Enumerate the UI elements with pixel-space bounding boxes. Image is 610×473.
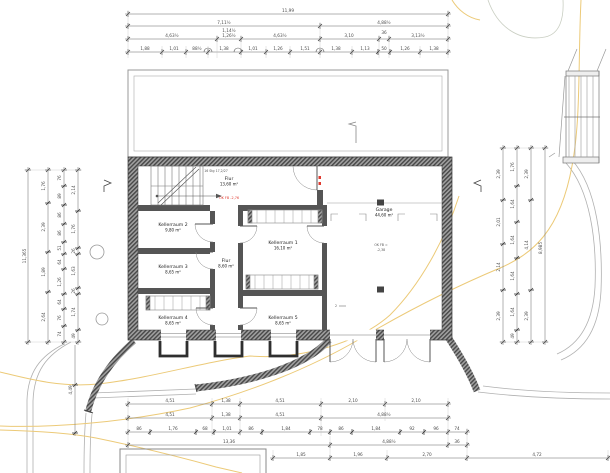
dimension-label: 36: [454, 439, 460, 444]
dimension-label: 1,89: [41, 267, 46, 277]
dimension-label: 4,51: [275, 412, 285, 417]
dimension-label: 1,63: [71, 266, 76, 276]
dimension-label: 4,88½: [377, 20, 390, 25]
dimension-label: 1,38: [221, 412, 231, 417]
stair-bottom-bar: [563, 157, 599, 163]
window-gap: [161, 330, 186, 341]
dimension-label: 3,13½: [411, 33, 424, 38]
light-well: [160, 341, 187, 356]
drain-marker-icon: [349, 122, 356, 143]
dimension-label: 74: [454, 426, 460, 431]
column: [377, 287, 384, 293]
level-annotation: OK FB -2,76: [219, 196, 239, 200]
dimension-label: 2,39: [41, 222, 46, 232]
dimension-label: 86: [57, 212, 62, 218]
dimension-label: 3,10: [344, 33, 354, 38]
dimension-label: 1,64: [510, 199, 515, 209]
dimension-label: 1,38: [429, 46, 439, 51]
dimension-label: 8,985: [538, 242, 543, 254]
dimension-label: 1,84: [281, 426, 291, 431]
terrain-squiggle-top: [488, 0, 563, 38]
dimension-label: 1,76: [168, 426, 178, 431]
dimension-label: 76: [57, 175, 62, 181]
dimension-label: 92: [409, 426, 415, 431]
dimension-label: 2,14: [496, 262, 501, 272]
road-curve-left-outer: [27, 344, 64, 473]
dimension-label: 2,64: [41, 312, 46, 322]
dimension-label: 1,26: [273, 46, 283, 51]
road-bottom: [93, 389, 196, 393]
dimension-label: 64: [57, 299, 62, 305]
dimension-label: 51: [57, 245, 62, 251]
dimension-label: 2,10: [348, 398, 358, 403]
terrain-contours: [0, 0, 581, 473]
dimension-label: 7,11½: [217, 20, 230, 25]
door-swing-arc: [196, 308, 213, 325]
dimension-label: 4,14: [524, 240, 529, 250]
stair-treads: [569, 76, 593, 157]
light-well: [270, 341, 297, 356]
dimension-label: 1,01: [169, 46, 179, 51]
road-right2: [483, 386, 610, 393]
stair-treads: [151, 166, 203, 205]
dimension-label: 4,49: [68, 385, 73, 395]
stair-top-bar: [566, 71, 599, 76]
dimension-label: 4,72: [532, 452, 542, 457]
road-curve-left-inner: [84, 413, 86, 473]
dimension-label: 4,63½: [165, 33, 178, 38]
floor-plan-page: 11,997,11½4,88½4,63½1,14½1,26½4,63½3,103…: [0, 0, 610, 473]
wall: [210, 325, 215, 330]
garage-door-arc: [353, 339, 376, 362]
road-bottom2: [93, 394, 196, 398]
shelf-endcap: [248, 210, 252, 223]
wall: [238, 243, 243, 308]
dimension-label: 36: [381, 30, 387, 35]
section-marker-2: 2: [335, 304, 337, 308]
dimension-label: 96: [433, 426, 439, 431]
dimension-label: 1,38: [219, 46, 229, 51]
door-swing-arc: [293, 166, 317, 190]
room-area: 8,65 m²: [165, 270, 181, 275]
dimension-label: 26: [71, 288, 76, 294]
door-swing-arc: [307, 226, 324, 243]
wall: [138, 205, 210, 211]
wall: [317, 190, 323, 205]
road-curve-left-outer2: [33, 342, 71, 473]
stair-edges: [564, 71, 600, 163]
retaining-wall-cap: [84, 384, 197, 413]
dimension-label: 1,64: [510, 307, 515, 317]
dimension-label: 1,26½: [222, 33, 235, 38]
dimension-chains: [25, 11, 610, 461]
door-swing-arc: [240, 226, 257, 243]
dimension-label: 26: [71, 248, 76, 254]
dimension-label: 49: [71, 333, 76, 339]
wall: [322, 243, 327, 330]
room-area: 16,10 m²: [274, 246, 293, 251]
dimension-label: 2,70: [422, 452, 432, 457]
shelf-endcap: [146, 296, 150, 310]
wall: [210, 211, 215, 224]
building: OK FB -2,76 2: [104, 157, 481, 362]
dimension-label: 2,10: [411, 398, 421, 403]
dimension-label: 88½: [192, 46, 201, 51]
dimension-label: 89: [57, 193, 62, 199]
red-annotations: OK FB -2,76: [219, 176, 321, 200]
dimension-label: 86: [136, 426, 142, 431]
dimension-label: 4,88½: [377, 412, 390, 417]
wall: [210, 242, 215, 252]
wall: [138, 248, 210, 254]
wall: [210, 269, 215, 308]
dimension-label: 1,01: [222, 426, 232, 431]
wall: [243, 290, 322, 296]
contour-line: [0, 430, 242, 473]
dimension-label: 13,36: [223, 439, 235, 444]
column: [377, 200, 384, 206]
dimension-label: 68: [202, 426, 208, 431]
garage-door-arc: [384, 339, 407, 362]
dimension-label: 4,51: [275, 398, 285, 403]
dimension-label: 2,39: [524, 311, 529, 321]
dimension-label: 2,01: [496, 217, 501, 227]
shelf-endcap: [246, 275, 250, 289]
garage-door-arc: [407, 339, 430, 362]
garage-door-leaf: [330, 339, 430, 362]
tree-symbol: [90, 245, 104, 259]
dimension-label: 74: [57, 331, 62, 337]
dimension-label: 1,26: [57, 277, 62, 287]
wall: [138, 288, 210, 294]
stair-slope-lines: [549, 49, 606, 157]
room-area: 13,60 m²: [220, 182, 239, 187]
door-swing-arc: [196, 252, 213, 269]
dimension-label: 49: [510, 333, 515, 339]
floor-plan-canvas: 11,997,11½4,88½4,63½1,14½1,26½4,63½3,103…: [0, 0, 610, 473]
dimension-label: 1,76: [41, 181, 46, 191]
dimension-label: 11,365: [22, 248, 27, 263]
contour-line: [452, 0, 480, 20]
dimension-label: 1,85: [296, 452, 306, 457]
forecourt-inner: [126, 455, 260, 473]
dimension-label: 1,84: [371, 426, 381, 431]
room-area: 44,60 m²: [375, 213, 394, 218]
window-gap: [271, 330, 296, 341]
dimension-label: 78: [317, 426, 323, 431]
dimension-label: 64: [57, 259, 62, 265]
retaining-wall-right: [448, 337, 477, 391]
door-tag: [319, 176, 322, 179]
dimension-label: 11,99: [282, 8, 294, 13]
dimension-label: 1,74: [71, 307, 76, 317]
section-marker-a-left: [104, 180, 111, 192]
wall: [322, 211, 327, 226]
dimension-label: 1,96: [353, 452, 363, 457]
exterior-stair: [549, 49, 606, 163]
door-swing-arc: [195, 224, 213, 242]
dimension-label: 2,14: [71, 185, 76, 195]
dimension-label: 2,39: [496, 311, 501, 321]
dimension-label: 1,88: [140, 46, 150, 51]
retaining-wall-left: [88, 341, 134, 412]
wall: [238, 211, 243, 226]
room-area: 9,80 m²: [165, 228, 181, 233]
light-wells: [160, 341, 297, 356]
site-linework: [27, 0, 610, 473]
dimension-label: 4,63½: [273, 33, 286, 38]
dimension-label: 1,64: [510, 271, 515, 281]
dimension-label: 4,51: [165, 398, 175, 403]
dimension-label: 1,26: [400, 46, 410, 51]
dimension-label: 86: [248, 426, 254, 431]
dimension-labels: 11,997,11½4,88½4,63½1,14½1,26½4,63½3,103…: [22, 8, 543, 457]
shelf-endcap: [314, 275, 318, 289]
dimension-label: 1,13: [360, 46, 370, 51]
door-swing-arc: [240, 308, 257, 325]
stair-outline: [151, 166, 203, 205]
dimension-label: 1,51: [300, 46, 310, 51]
room-area: 8,65 m²: [165, 321, 181, 326]
stair-annotation: 16 Stg 17,2/27: [204, 169, 228, 173]
dimension-label: 1,76: [510, 162, 515, 172]
dimension-label: 4,51: [165, 412, 175, 417]
room-area: 8,60 m²: [218, 264, 234, 269]
window-gap: [216, 330, 241, 341]
light-well: [215, 341, 242, 356]
dimension-label: 86: [57, 230, 62, 236]
dimension-label: 50: [381, 46, 387, 51]
terrace-inner: [134, 76, 442, 151]
garage-level-annotation: OK FB =: [374, 243, 388, 247]
dimension-label: 1,38: [221, 398, 231, 403]
dimension-label: 1,64: [510, 235, 515, 245]
wall: [238, 325, 243, 330]
terrace-outline: [128, 70, 448, 157]
dimension-label: 2,39: [496, 169, 501, 179]
dimension-label: 76: [57, 315, 62, 321]
terrace-outer: [128, 70, 448, 157]
tree-symbol: [96, 313, 108, 325]
dimension-label: 1,01: [248, 46, 258, 51]
garage-level-annotation: -2,38: [377, 248, 385, 252]
extension-lines: [24, 10, 608, 461]
shelf-endcap: [318, 210, 322, 223]
dimension-label: 2,39: [524, 169, 529, 179]
dimension-label: 1,76: [71, 224, 76, 234]
room-area: 8,65 m²: [275, 321, 291, 326]
door-tag: [319, 182, 322, 185]
dimension-label: 4,88½: [382, 439, 395, 444]
section-marker-a-right: [474, 180, 481, 192]
dimension-label: 86: [338, 426, 344, 431]
dimension-label: 1,38: [331, 46, 341, 51]
